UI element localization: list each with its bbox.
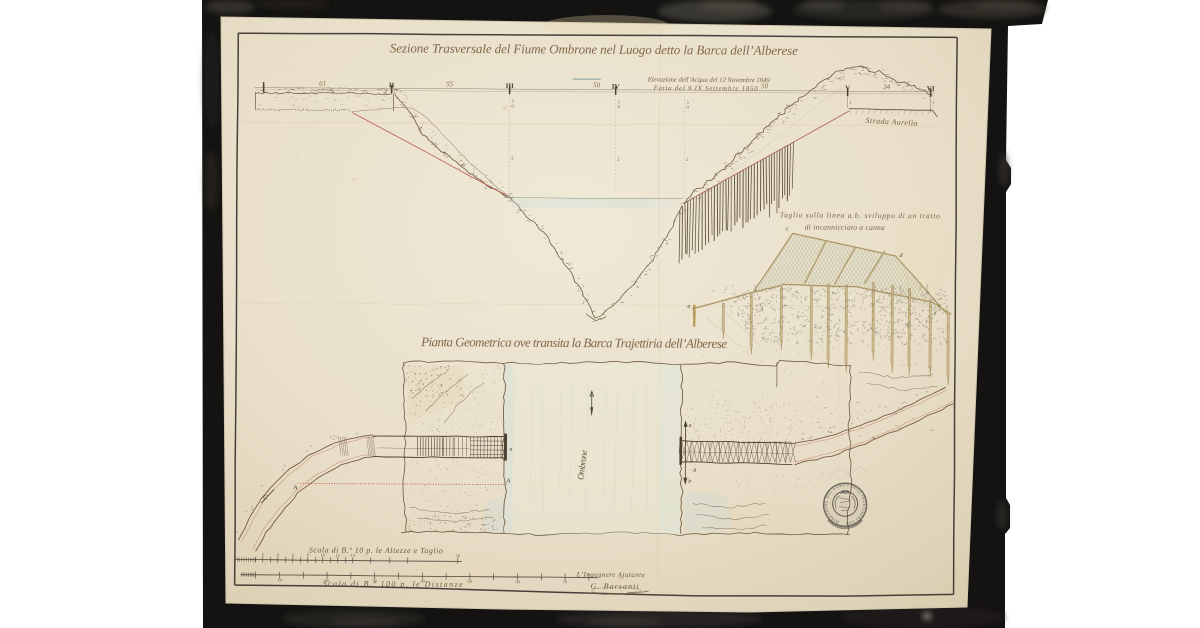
svg-text:Scala di B.º 10 p. le Altezze: Scala di B.º 10 p. le Altezze e Taglio	[309, 545, 443, 555]
svg-text:b: b	[688, 479, 691, 485]
svg-text:1: 1	[850, 100, 852, 105]
svg-text:Taglio sulla linea a.b. svilup: Taglio sulla linea a.b. sviluppo di un t…	[780, 210, 940, 220]
svg-text:di incannicciato a canna: di incannicciato a canna	[805, 222, 885, 231]
svg-text:Elevazione dell’Acqua del 12 N: Elevazione dell’Acqua del 12 Novembre 18…	[647, 76, 771, 84]
svg-text:C: C	[263, 494, 268, 501]
svg-text:a: a	[687, 304, 690, 310]
svg-text:10: 10	[277, 578, 281, 583]
svg-text:II: II	[389, 81, 395, 89]
svg-text:I: I	[262, 81, 265, 89]
svg-text:1: 1	[933, 100, 935, 105]
svg-text:IV: IV	[612, 83, 620, 91]
svg-text:61: 61	[319, 79, 326, 87]
svg-text:VI: VI	[927, 85, 935, 93]
svg-text:Fatta del 9 IX Settembre 1850: Fatta del 9 IX Settembre 1850	[653, 85, 759, 93]
svg-text:50: 50	[593, 81, 601, 89]
svg-text:Sezione Trasversale del Fiume: Sezione Trasversale del Fiume Ombrone ne…	[390, 40, 798, 57]
svg-text:34: 34	[882, 83, 891, 91]
svg-text:70: 70	[562, 579, 566, 584]
svg-text:a: a	[509, 447, 512, 453]
svg-text:Pianta Geometrica ove transita: Pianta Geometrica ove transita la Barca …	[420, 334, 727, 351]
svg-text:G. Barsanti: G. Barsanti	[591, 582, 639, 591]
svg-text:2: 2	[617, 156, 619, 161]
svg-text:c: c	[786, 226, 789, 232]
svg-text:12: 12	[336, 553, 340, 558]
svg-text:III: III	[506, 82, 514, 90]
svg-text:55: 55	[446, 80, 454, 88]
svg-text:10: 10	[321, 553, 325, 558]
svg-text:2: 2	[262, 552, 264, 557]
svg-text:50: 50	[467, 579, 471, 584]
svg-text:2: 2	[686, 157, 688, 162]
svg-text:50: 50	[456, 553, 460, 558]
svg-text:V: V	[845, 84, 850, 92]
svg-text:A: A	[505, 478, 510, 485]
svg-text:A: A	[292, 484, 297, 491]
svg-text:8: 8	[307, 552, 309, 557]
svg-text:2: 2	[511, 156, 513, 161]
svg-text:60: 60	[515, 579, 519, 584]
svg-text:Scala di B.º 100 p. le Distanz: Scala di B.º 100 p. le Distanze	[323, 579, 463, 589]
